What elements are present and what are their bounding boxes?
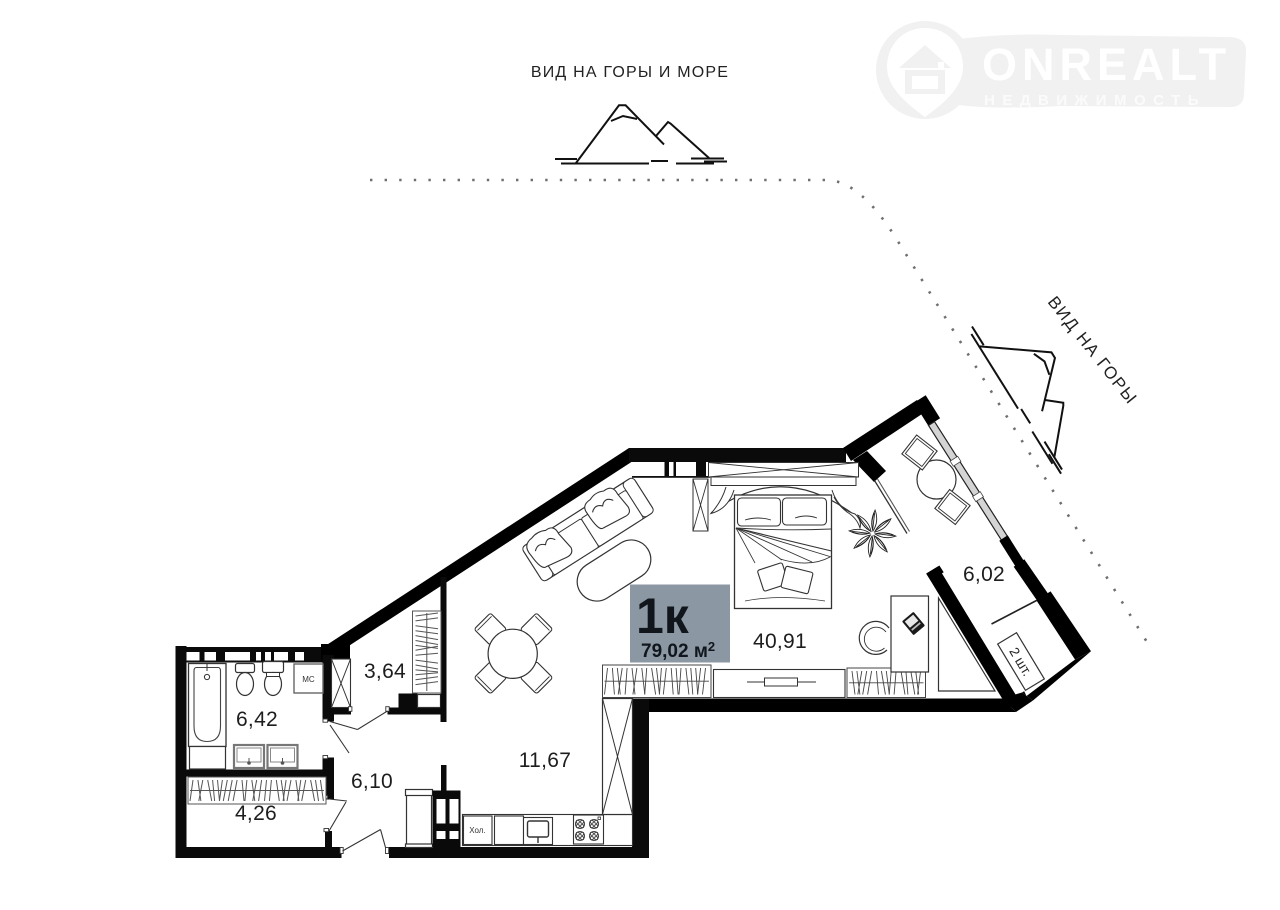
svg-text:79,02 м2: 79,02 м2 — [641, 639, 715, 662]
svg-text:ONREALT: ONREALT — [982, 39, 1231, 90]
svg-text:11,67: 11,67 — [519, 749, 572, 772]
svg-text:НЕДВИЖИМОСТЬ: НЕДВИЖИМОСТЬ — [984, 92, 1206, 109]
svg-text:3,64: 3,64 — [364, 660, 406, 683]
svg-text:МС: МС — [302, 675, 315, 684]
svg-text:6,10: 6,10 — [351, 770, 393, 793]
svg-text:ВИД НА ГОРЫ: ВИД НА ГОРЫ — [1044, 293, 1141, 409]
svg-text:6,02: 6,02 — [963, 563, 1005, 586]
svg-text:40,91: 40,91 — [753, 630, 807, 653]
svg-text:6,42: 6,42 — [236, 708, 278, 731]
svg-text:Хол.: Хол. — [469, 826, 485, 835]
svg-text:4,26: 4,26 — [235, 802, 277, 825]
svg-text:1к: 1к — [636, 588, 690, 644]
svg-text:ВИД НА ГОРЫ И МОРЕ: ВИД НА ГОРЫ И МОРЕ — [531, 64, 729, 81]
